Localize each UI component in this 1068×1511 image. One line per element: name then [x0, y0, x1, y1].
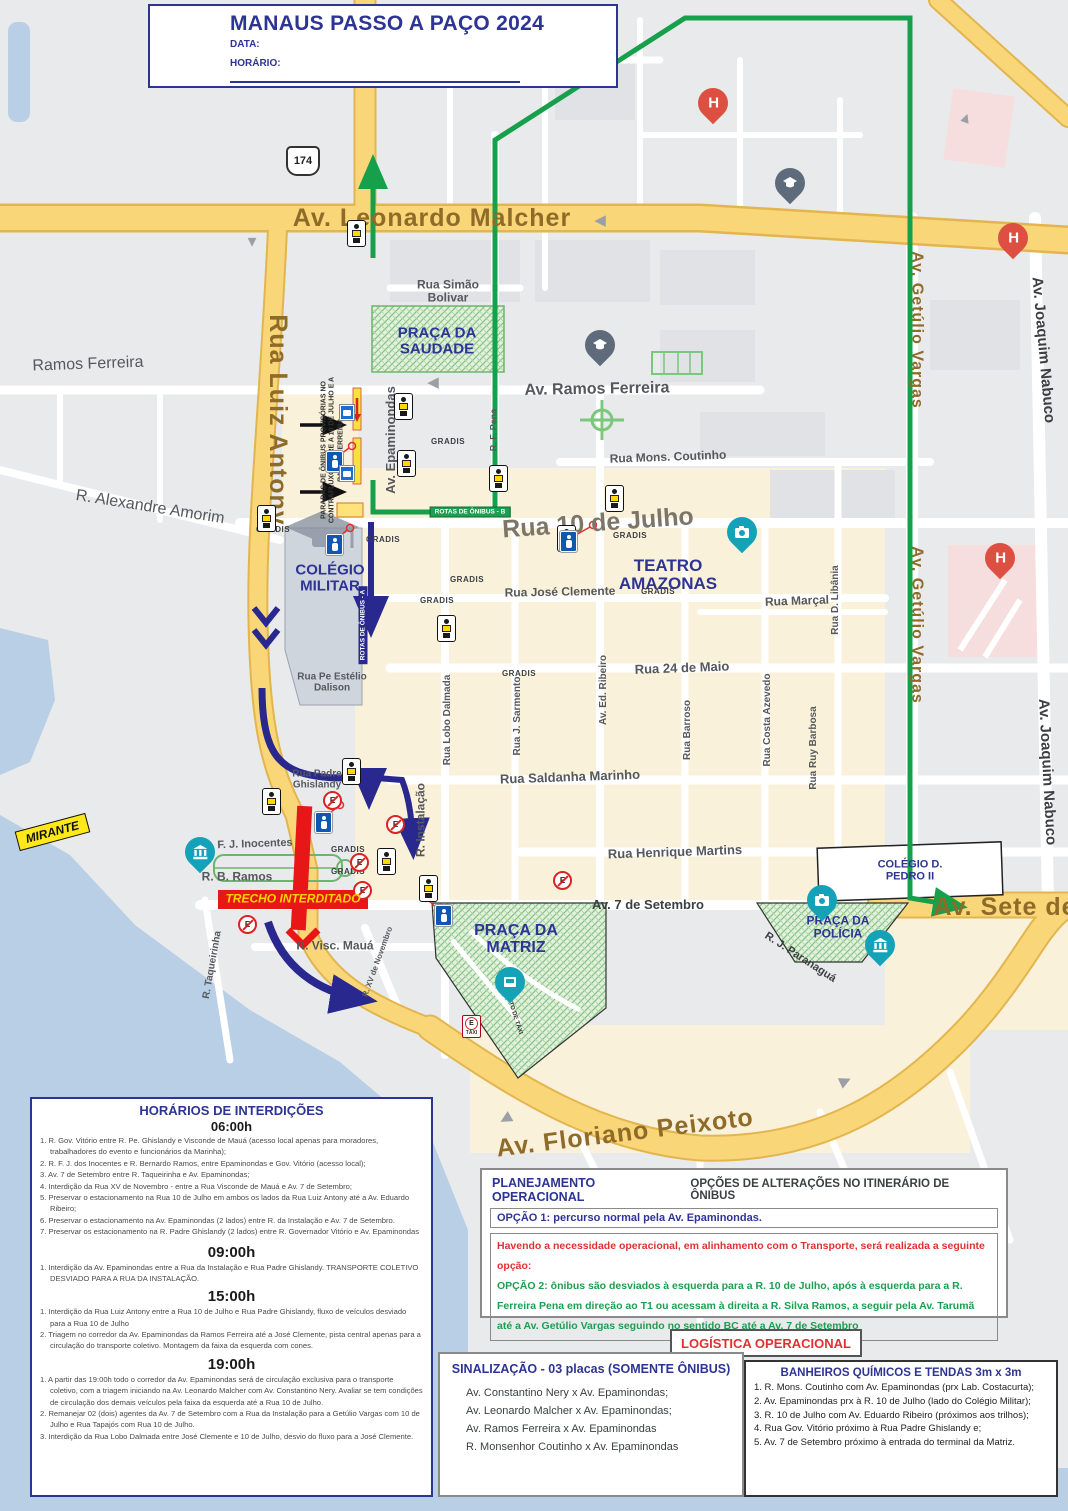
- restroom-item: 2. Av. Epaminondas prx à R. 10 de Julho …: [754, 1395, 1048, 1409]
- street-label-simao-bolivar: Rua Simão Bolivar: [408, 278, 488, 303]
- street-label-av-ramos-ferreira: Av. Ramos Ferreira: [524, 380, 669, 399]
- restroom-sign-icon: [560, 531, 577, 552]
- restroom-item: 4. Rua Gov. Vitório próximo à Rua Padre …: [754, 1422, 1048, 1436]
- street-label-lobo-dalmada: Rua Lobo Dalmada: [443, 675, 454, 766]
- signage-items: Av. Constantino Nery x Av. Epaminondas;A…: [466, 1384, 732, 1457]
- road-direction-arrow-icon: ▼: [245, 234, 260, 251]
- street-label-d-libania: Rua D. Libânia: [831, 565, 842, 634]
- map-flyer: Av. Leonardo Malcher Rua Simão Bolivar P…: [0, 0, 1068, 1511]
- street-label-24-de-maio: Rua 24 de Maio: [634, 660, 729, 677]
- date-field-label: DATA:: [230, 39, 606, 50]
- traffic-agent-icon: [347, 220, 366, 247]
- traffic-agent-icon: [605, 485, 624, 512]
- closure-item: 3. Av. 7 de Setembro entre R. Taqueirinh…: [40, 1169, 423, 1180]
- closure-item: 1. R. Gov. Vitório entre R. Pe. Ghisland…: [40, 1135, 423, 1158]
- closure-item: 3. Interdição da Rua Lobo Dalmada entre …: [40, 1431, 423, 1442]
- traffic-agent-icon: [419, 875, 438, 902]
- closure-time-1900: 19:00h: [40, 1356, 423, 1373]
- page-title: MANAUS PASSO A PAÇO 2024: [230, 12, 606, 36]
- closure-item: 2. Remanejar 02 (dois) agentes da Av. 7 …: [40, 1408, 423, 1431]
- traffic-agent-icon: [342, 758, 361, 785]
- provisional-stops-note: PARADAS DE ÔNIBUS PROVISÓRIAS NO CONTRAF…: [320, 375, 345, 525]
- closure-item: 2. Triagem no corredor da Av. Epaminonda…: [40, 1329, 423, 1352]
- closure-item: 1. Interdição da Av. Epaminondas entre a…: [40, 1262, 423, 1285]
- logistics-title: LOGÍSTICA OPERACIONAL: [681, 1336, 851, 1351]
- restroom-item: 1. R. Mons. Coutinho com Av. Epaminondas…: [754, 1381, 1048, 1395]
- street-label-j-sarmento: Rua J. Sarmento: [513, 677, 524, 756]
- restrooms-title: BANHEIROS QUÍMICOS E TENDAS 3m x 3m: [754, 1367, 1048, 1379]
- closure-schedule-title: HORÁRIOS DE INTERDIÇÕES: [40, 1103, 423, 1118]
- bus-option-1: OPÇÃO 1: percurso normal pela Av. Epamin…: [490, 1208, 998, 1228]
- bus-option-2-box: Havendo a necessidade operacional, em al…: [490, 1233, 998, 1341]
- bus-route-banner-b: ROTAS DE ÔNIBUS - B: [430, 507, 511, 518]
- traffic-agent-icon: [262, 788, 281, 815]
- closure-items-1900: 1. A partir das 19:00h todo o corredor d…: [40, 1374, 423, 1442]
- restroom-item: 5. Av. 7 de Setembro próximo à entrada d…: [754, 1436, 1048, 1450]
- gradis-label: GRADIS: [613, 532, 647, 540]
- signage-item: R. Monsenhor Coutinho x Av. Epaminondas: [466, 1438, 732, 1456]
- street-label-leonardo-malcher: Av. Leonardo Malcher: [293, 205, 571, 231]
- time-field-label: HORÁRIO:: [230, 58, 606, 69]
- road-direction-arrow-icon: ◀: [594, 211, 606, 229]
- signage-box: SINALIZAÇÃO - 03 placas (SOMENTE ÔNIBUS)…: [438, 1352, 744, 1497]
- traffic-agent-icon: [489, 465, 508, 492]
- street-label-getulio-vargas-south: Av. Getúlio Vargas: [908, 546, 925, 704]
- street-label-luiz-antony: Rua Luiz Antony: [265, 314, 291, 525]
- gradis-label: GRADIS: [431, 438, 465, 446]
- bus-stop-sign-icon: [340, 405, 354, 420]
- restroom-sign-icon: [315, 812, 332, 833]
- street-label-pe-estelio: Rua Pe Estélio Dalison: [290, 673, 375, 694]
- traffic-agent-icon: [257, 505, 276, 532]
- closure-item: 1. A partir das 19:00h todo o corredor d…: [40, 1374, 423, 1408]
- traffic-agent-icon: [397, 450, 416, 477]
- closure-item: 7. Preservar os estacionamento na R. Pad…: [40, 1226, 423, 1237]
- taxi-e-icon: E: [465, 1017, 478, 1030]
- restrooms-items: 1. R. Mons. Coutinho com Av. Epaminondas…: [754, 1381, 1048, 1450]
- signage-item: Av. Constantino Nery x Av. Epaminondas;: [466, 1384, 732, 1402]
- poi-label-praca-saudade: PRAÇA DA SAUDADE: [382, 325, 492, 357]
- restrooms-box: BANHEIROS QUÍMICOS E TENDAS 3m x 3m 1. R…: [744, 1360, 1058, 1497]
- closure-schedule-box: HORÁRIOS DE INTERDIÇÕES 06:00h 1. R. Gov…: [30, 1097, 433, 1497]
- street-label-marcal: Rua Marçal: [765, 594, 829, 609]
- bus-options-title: OPÇÕES DE ALTERAÇÕES NO ITINERÁRIO DE ÔN…: [690, 1178, 996, 1202]
- bus-route-banner-a: ROTAS DE ÔNIBUS - A: [359, 586, 368, 664]
- closure-item: 1. Interdição da Rua Luiz Antony entre a…: [40, 1306, 423, 1329]
- closure-items-0600: 1. R. Gov. Vitório entre R. Pe. Ghisland…: [40, 1135, 423, 1238]
- closure-time-0600: 06:00h: [40, 1119, 423, 1134]
- street-label-av-sete: Av. Sete de: [934, 894, 1068, 920]
- gradis-label: GRADIS: [366, 536, 400, 544]
- taxi-sign: E TÁXI: [462, 1015, 481, 1038]
- road-direction-arrow-icon: ◀: [427, 373, 439, 391]
- closure-time-1500: 15:00h: [40, 1288, 423, 1305]
- traffic-agent-icon: [437, 615, 456, 642]
- restroom-sign-icon: [326, 534, 343, 555]
- taxi-label: TÁXI: [466, 1030, 477, 1036]
- poi-label-colegio-militar: COLÉGIO MILITAR: [275, 562, 385, 594]
- gradis-label: GRADIS: [420, 597, 454, 605]
- bus-option-2: OPÇÃO 2: ônibus são desviados à esquerda…: [497, 1277, 991, 1337]
- poi-label-colegio-pedro-ii: COLÉGIO D. PEDRO II: [860, 859, 960, 882]
- no-parking-icon: E: [386, 815, 405, 834]
- closure-time-0900: 09:00h: [40, 1244, 423, 1261]
- closure-item: 6. Preservar o estacionamento na Av. Epa…: [40, 1215, 423, 1226]
- no-parking-icon: E: [238, 915, 257, 934]
- closure-item: 5. Preservar o estacionamento na Rua 10 …: [40, 1192, 423, 1215]
- street-label-visc-maua: R. Visc. Mauá: [296, 940, 373, 953]
- route-shield-174: 174: [286, 146, 320, 176]
- traffic-agent-icon: [377, 848, 396, 875]
- street-label-instalacao: R. Instalação: [415, 783, 428, 857]
- fill-in-line: [230, 81, 520, 83]
- closure-item: 2. R. F. J. dos Inocentes e R. Bernardo …: [40, 1158, 423, 1169]
- closure-item: 4. Interdição da Rua XV de Novembro - en…: [40, 1181, 423, 1192]
- street-label-jose-clemente: Rua José Clemente: [505, 585, 616, 600]
- street-label-costa-azevedo: Rua Costa Azevedo: [763, 674, 774, 767]
- bus-stop-sign-icon: [340, 466, 354, 481]
- operational-planning-box: PLANEJAMENTO OPERACIONAL OPÇÕES DE ALTER…: [480, 1168, 1008, 1318]
- signage-title: SINALIZAÇÃO - 03 placas (SOMENTE ÔNIBUS): [450, 1362, 732, 1376]
- gradis-label: GRADIS: [641, 588, 675, 596]
- signage-item: Av. Ramos Ferreira x Av. Epaminondas: [466, 1420, 732, 1438]
- street-label-ferreira-pena: R. F. Pena: [489, 409, 498, 452]
- gradis-label: GRADIS: [502, 670, 536, 678]
- closure-items-0900: 1. Interdição da Av. Epaminondas entre a…: [40, 1262, 423, 1285]
- planning-title: PLANEJAMENTO OPERACIONAL: [492, 1176, 690, 1204]
- street-label-b-ramos: R. B. Ramos: [202, 871, 273, 884]
- restroom-item: 3. R. 10 de Julho com Av. Eduardo Ribeir…: [754, 1409, 1048, 1423]
- restroom-sign-icon: [435, 905, 452, 926]
- closed-segment-label: TRECHO INTERDITADO: [225, 893, 360, 906]
- poi-label-praca-matriz: PRAÇA DA MATRIZ: [459, 923, 574, 957]
- gradis-label: GRADIS: [450, 576, 484, 584]
- operational-warning: Havendo a necessidade operacional, em al…: [497, 1237, 991, 1277]
- street-label-getulio-vargas-north: Av. Getúlio Vargas: [908, 251, 925, 409]
- traffic-agent-icon: [394, 393, 413, 420]
- street-label-barroso: Rua Barroso: [683, 700, 694, 760]
- signage-item: Av. Leonardo Malcher x Av. Epaminondas;: [466, 1402, 732, 1420]
- closure-items-1500: 1. Interdição da Rua Luiz Antony entre a…: [40, 1306, 423, 1352]
- title-box: MANAUS PASSO A PAÇO 2024 DATA: HORÁRIO:: [148, 4, 618, 88]
- street-label-ed-ribeiro: Av. Ed. Ribeiro: [599, 655, 610, 725]
- no-parking-icon: E: [323, 791, 342, 810]
- street-label-7-setembro: Av. 7 de Setembro: [592, 898, 704, 912]
- street-label-ruy-barbosa: Rua Ruy Barbosa: [809, 706, 820, 789]
- no-parking-icon: E: [350, 853, 369, 872]
- no-parking-icon: E: [553, 871, 572, 890]
